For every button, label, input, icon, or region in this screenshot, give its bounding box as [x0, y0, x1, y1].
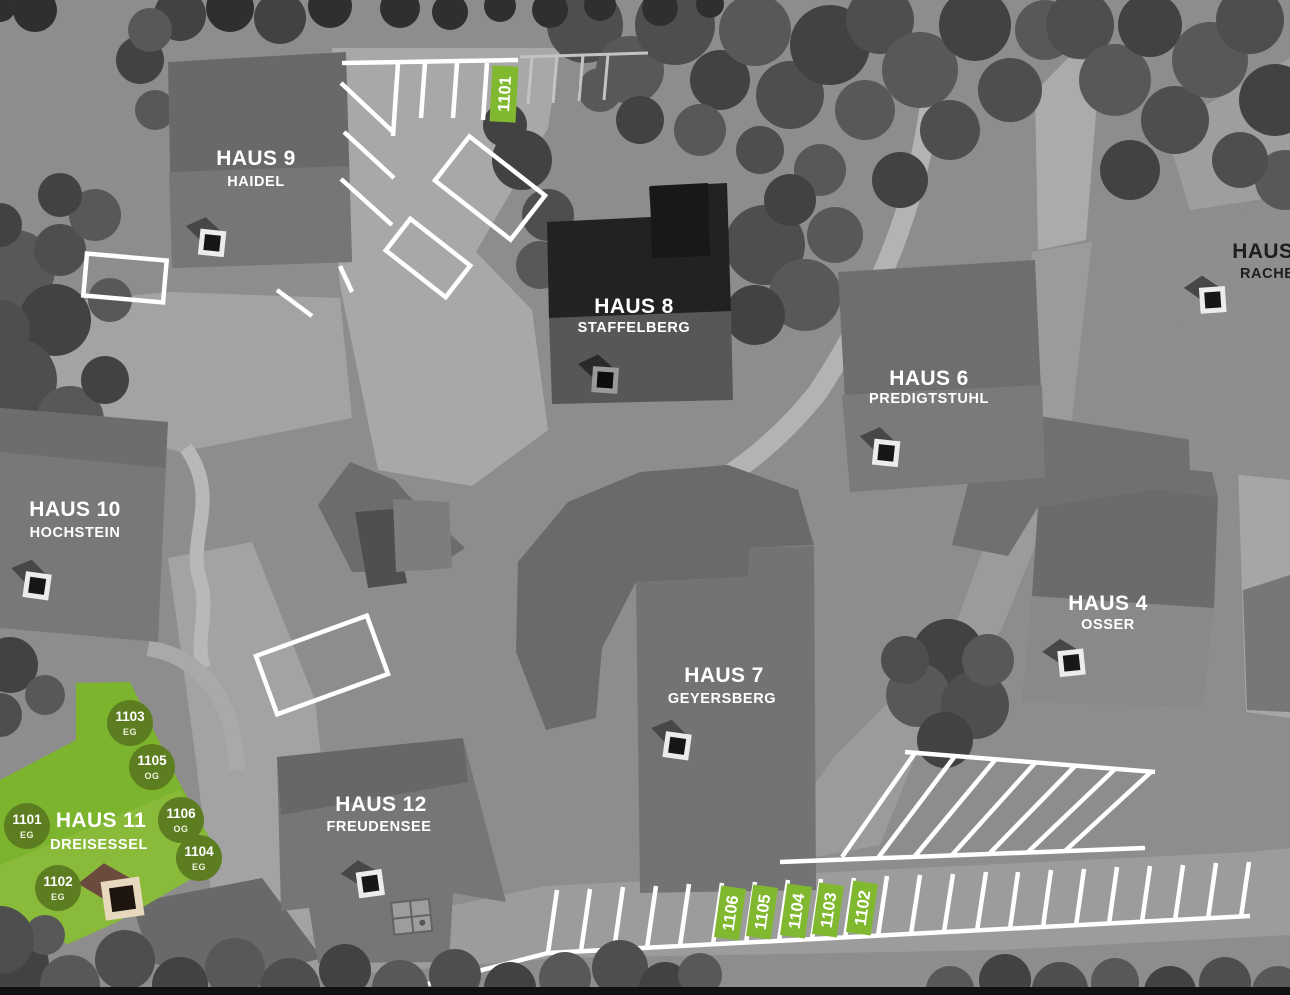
building-label-haus-5: HAUS 5 RACHEL — [1232, 240, 1290, 282]
building-name: HAUS 9 — [216, 147, 295, 170]
building-label-haus-10: HAUS 10 HOCHSTEIN — [29, 498, 121, 541]
building-subtitle: GEYERSBERG — [668, 691, 776, 707]
building-name: HAUS 6 — [889, 367, 968, 390]
unit-floor: EG — [192, 862, 206, 872]
unit-badge-1101[interactable]: 1101 EG — [4, 803, 50, 849]
building-subtitle: DREISESSEL — [50, 837, 148, 853]
building-haus-7[interactable] — [636, 546, 816, 893]
building-label-haus-9: HAUS 9 HAIDEL — [216, 147, 295, 190]
unit-badge-1102[interactable]: 1102 EG — [35, 865, 81, 911]
building-mid-shed — [355, 499, 452, 588]
building-name: HAUS 5 — [1232, 240, 1290, 263]
window-grid-icon — [390, 898, 433, 936]
unit-floor: EG — [51, 892, 65, 902]
map-edge — [0, 987, 1290, 995]
building-name: HAUS 10 — [29, 498, 121, 521]
site-map: 1101 1106 1105 1104 1103 1102 — [0, 0, 1290, 995]
unit-number: 1105 — [137, 753, 167, 768]
building-label-haus-8: HAUS 8 STAFFELBERG — [578, 295, 691, 336]
unit-number: 1102 — [43, 874, 72, 889]
parking-spot-label: 1101 — [495, 76, 515, 113]
building-subtitle: PREDIGTSTUHL — [869, 391, 989, 407]
site-map-canvas: 1101 1106 1105 1104 1103 1102 — [0, 0, 1290, 995]
building-name: HAUS 8 — [594, 295, 673, 318]
unit-floor: EG — [123, 727, 137, 737]
building-label-haus-12: HAUS 12 FREUDENSEE — [326, 793, 431, 835]
building-subtitle: OSSER — [1081, 617, 1135, 633]
unit-floor: OG — [144, 771, 159, 781]
building-label-haus-11: HAUS 11 DREISESSEL — [50, 809, 148, 853]
building-subtitle: RACHEL — [1240, 266, 1290, 282]
unit-badge-1103[interactable]: 1103 EG — [107, 700, 153, 746]
unit-badge-1105[interactable]: 1105 OG — [129, 744, 175, 790]
building-subtitle: HOCHSTEIN — [30, 525, 121, 541]
unit-number: 1101 — [12, 812, 42, 827]
building-label-haus-7: HAUS 7 GEYERSBERG — [668, 664, 776, 707]
building-name: HAUS 12 — [335, 793, 427, 816]
building-name: HAUS 11 — [56, 809, 146, 832]
unit-number: 1103 — [115, 709, 145, 724]
building-name: HAUS 7 — [684, 664, 763, 687]
unit-floor: EG — [20, 830, 34, 840]
building-subtitle: STAFFELBERG — [578, 320, 691, 336]
building-haus-8[interactable] — [547, 183, 733, 404]
building-subtitle: HAIDEL — [227, 174, 285, 190]
building-subtitle: FREUDENSEE — [326, 819, 431, 835]
building-name: HAUS 4 — [1068, 592, 1147, 615]
unit-number: 1104 — [184, 844, 214, 859]
unit-floor: OG — [173, 824, 188, 834]
unit-badge-1104[interactable]: 1104 EG — [176, 835, 222, 881]
parking-spot-1101[interactable]: 1101 — [490, 65, 519, 122]
unit-number: 1106 — [166, 806, 196, 821]
